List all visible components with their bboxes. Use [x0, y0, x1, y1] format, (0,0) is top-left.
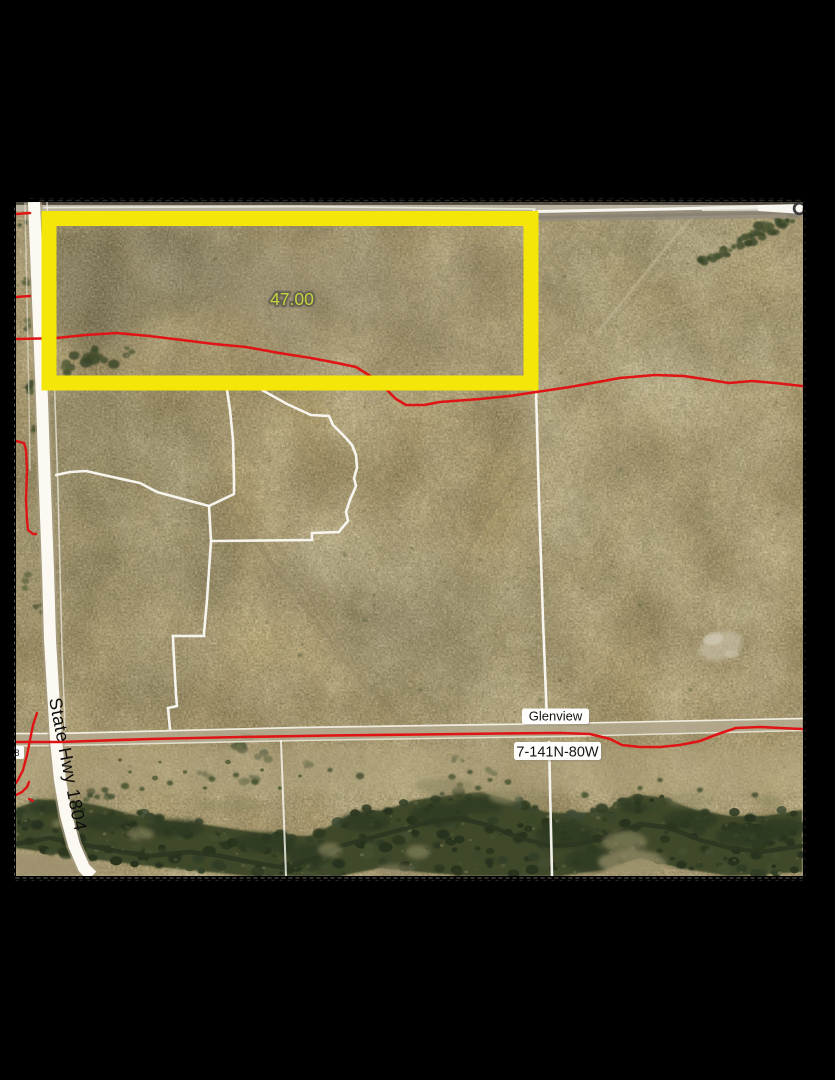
- svg-text:8: 8: [14, 748, 19, 758]
- svg-text:47.00: 47.00: [270, 289, 314, 309]
- svg-text:Glenview: Glenview: [529, 709, 583, 724]
- svg-text:7-141N-80W: 7-141N-80W: [516, 744, 599, 760]
